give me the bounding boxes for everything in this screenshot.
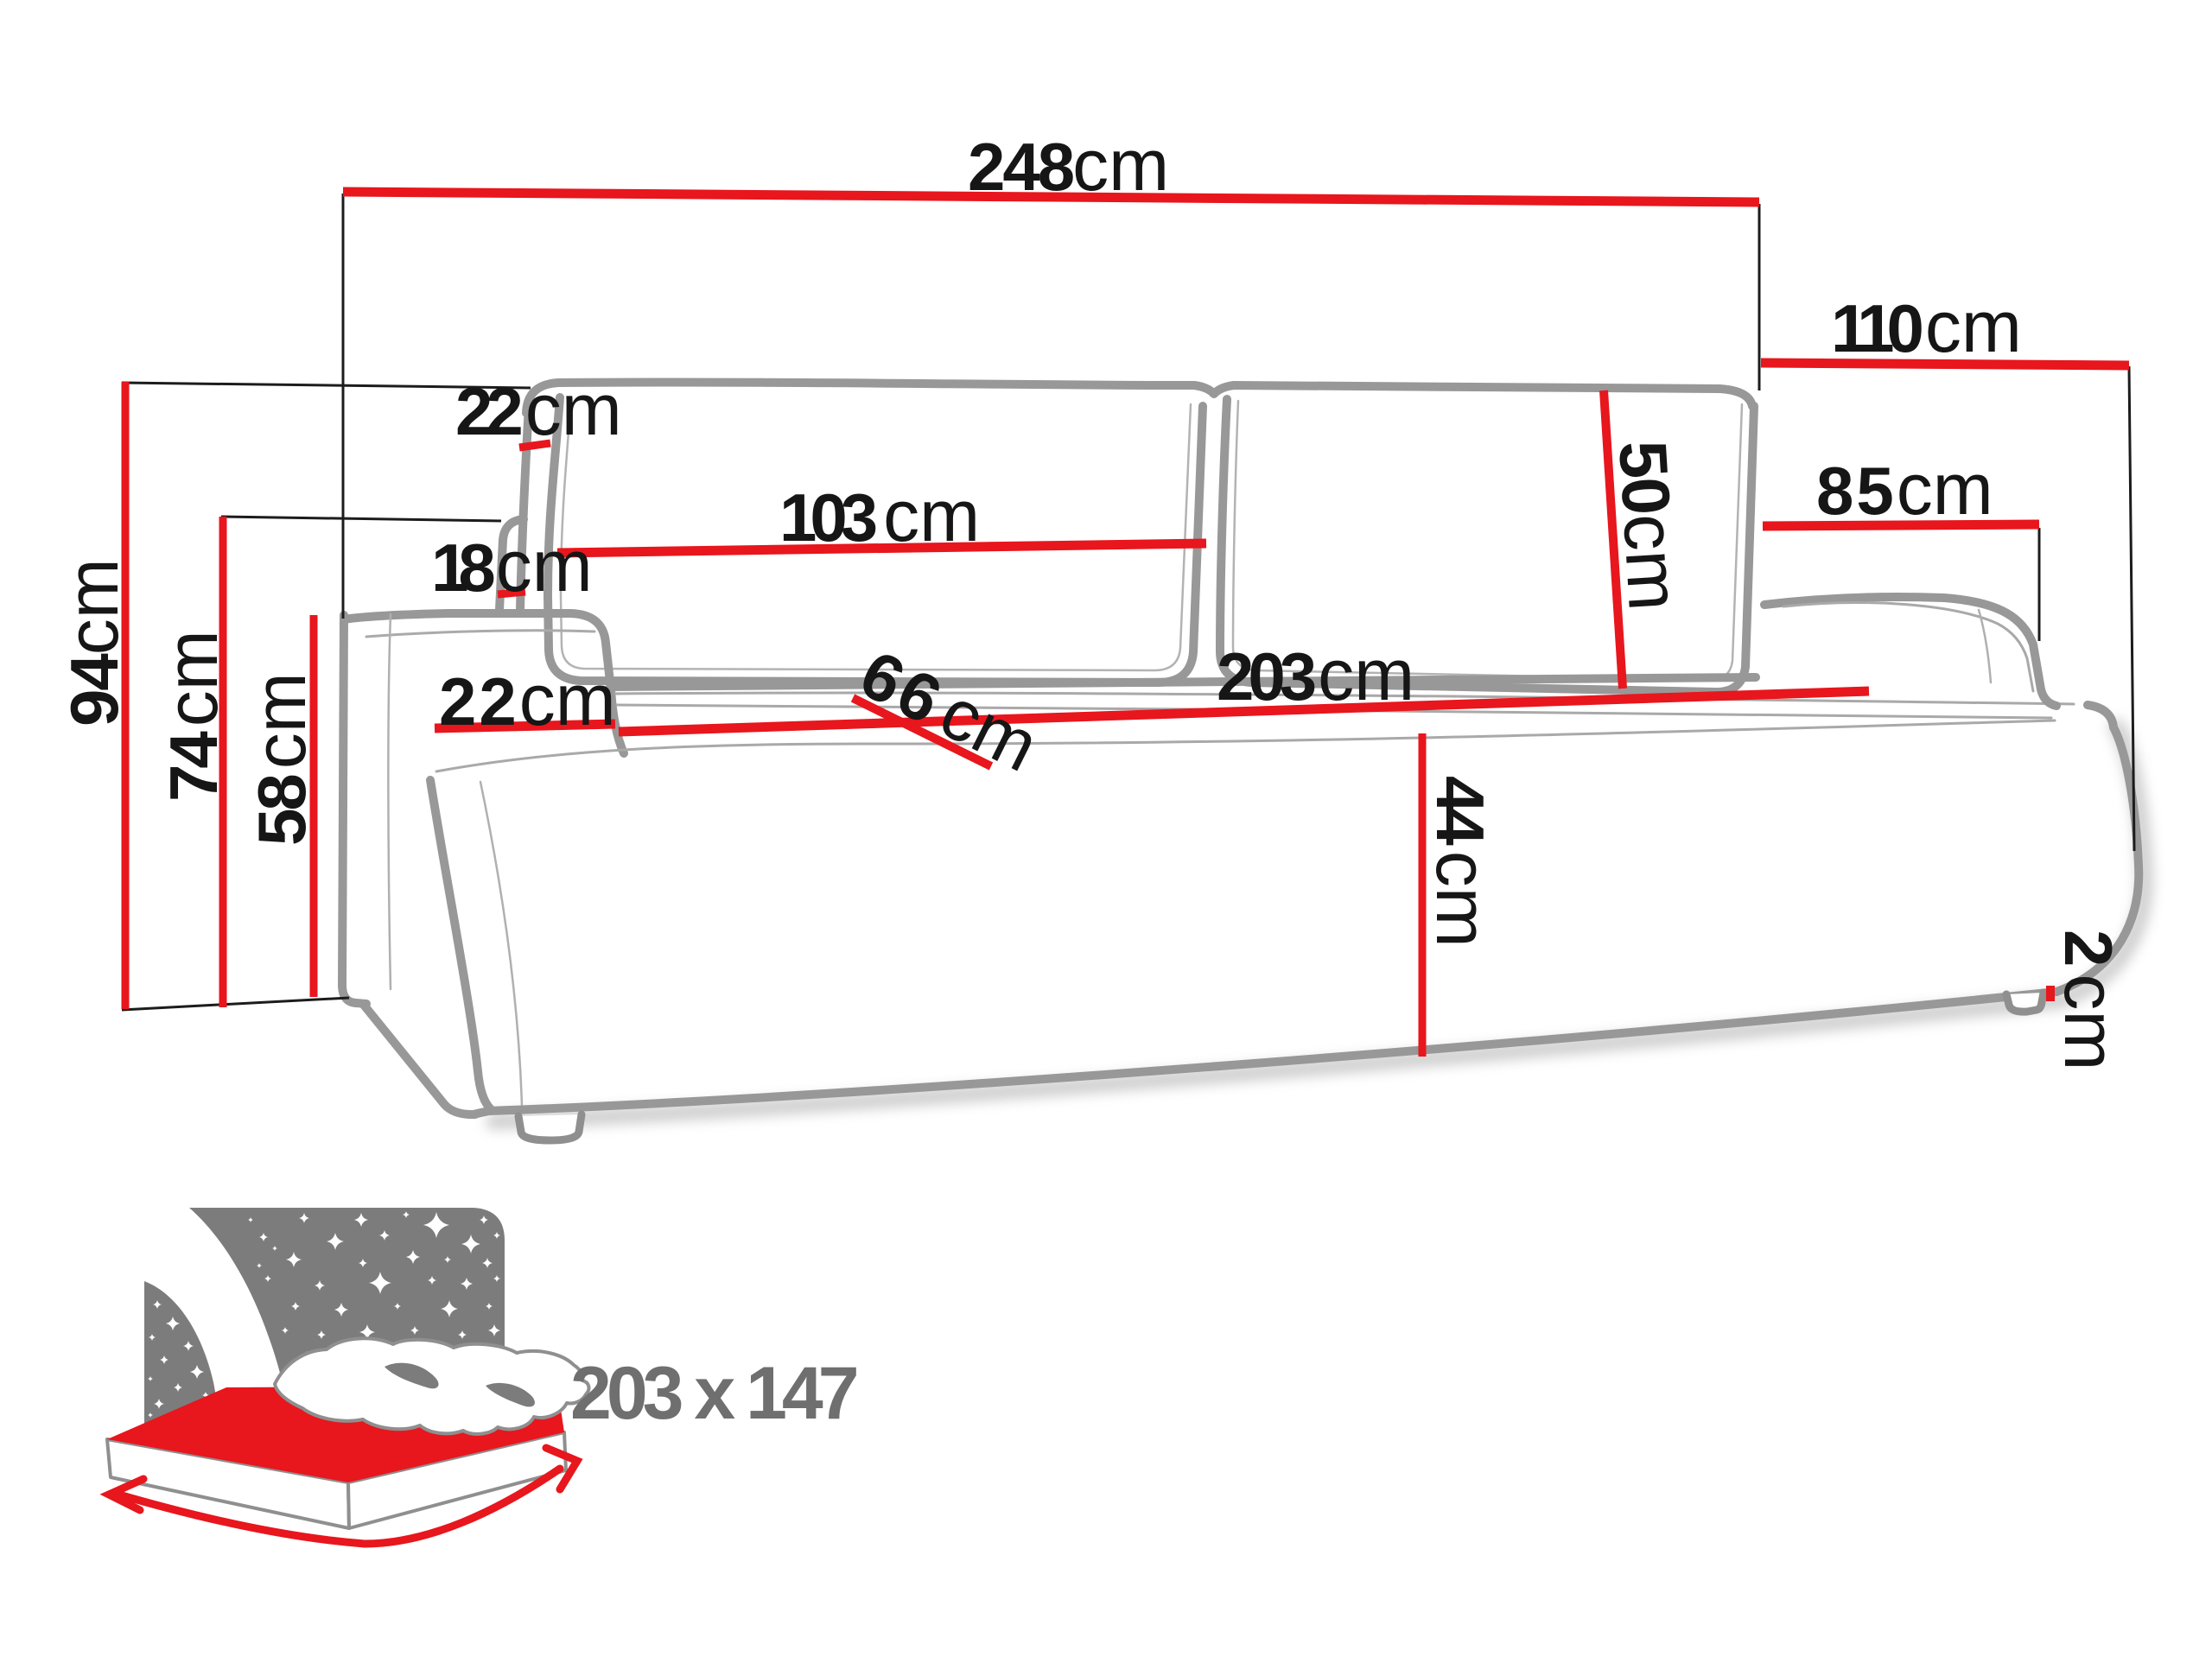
svg-text:18cm: 18cm (431, 525, 593, 606)
svg-text:22cm: 22cm (439, 659, 616, 740)
svg-text:74cm: 74cm (151, 630, 232, 802)
svg-text:85cm: 85cm (1816, 448, 1993, 530)
svg-text:2cm: 2cm (2050, 930, 2131, 1070)
svg-text:44cm: 44cm (1421, 776, 1503, 948)
svg-text:22cm: 22cm (455, 369, 622, 450)
svg-text:94cm: 94cm (52, 558, 133, 727)
svg-text:110cm: 110cm (1831, 286, 2022, 367)
svg-text:50cm: 50cm (1604, 438, 1695, 613)
svg-text:58cm: 58cm (239, 672, 321, 846)
svg-text:203 x 147: 203 x 147 (570, 1352, 857, 1435)
svg-text:248cm: 248cm (968, 124, 1169, 206)
